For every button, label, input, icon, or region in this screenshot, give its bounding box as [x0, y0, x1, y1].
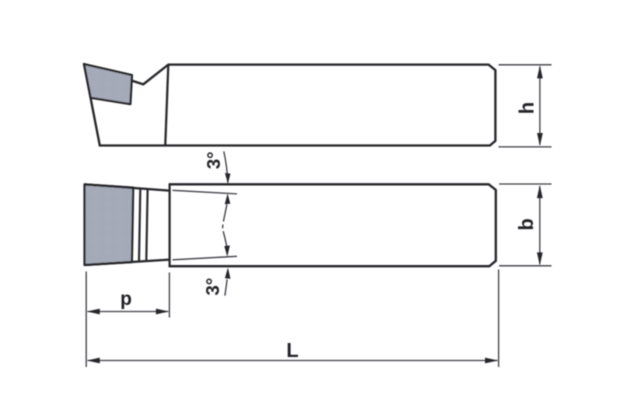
svg-text:h: h: [517, 102, 539, 114]
svg-text:3°: 3°: [203, 151, 224, 169]
svg-text:L: L: [286, 340, 298, 362]
svg-text:b: b: [516, 218, 538, 230]
svg-text:p: p: [120, 289, 132, 310]
svg-text:3°: 3°: [202, 278, 223, 296]
